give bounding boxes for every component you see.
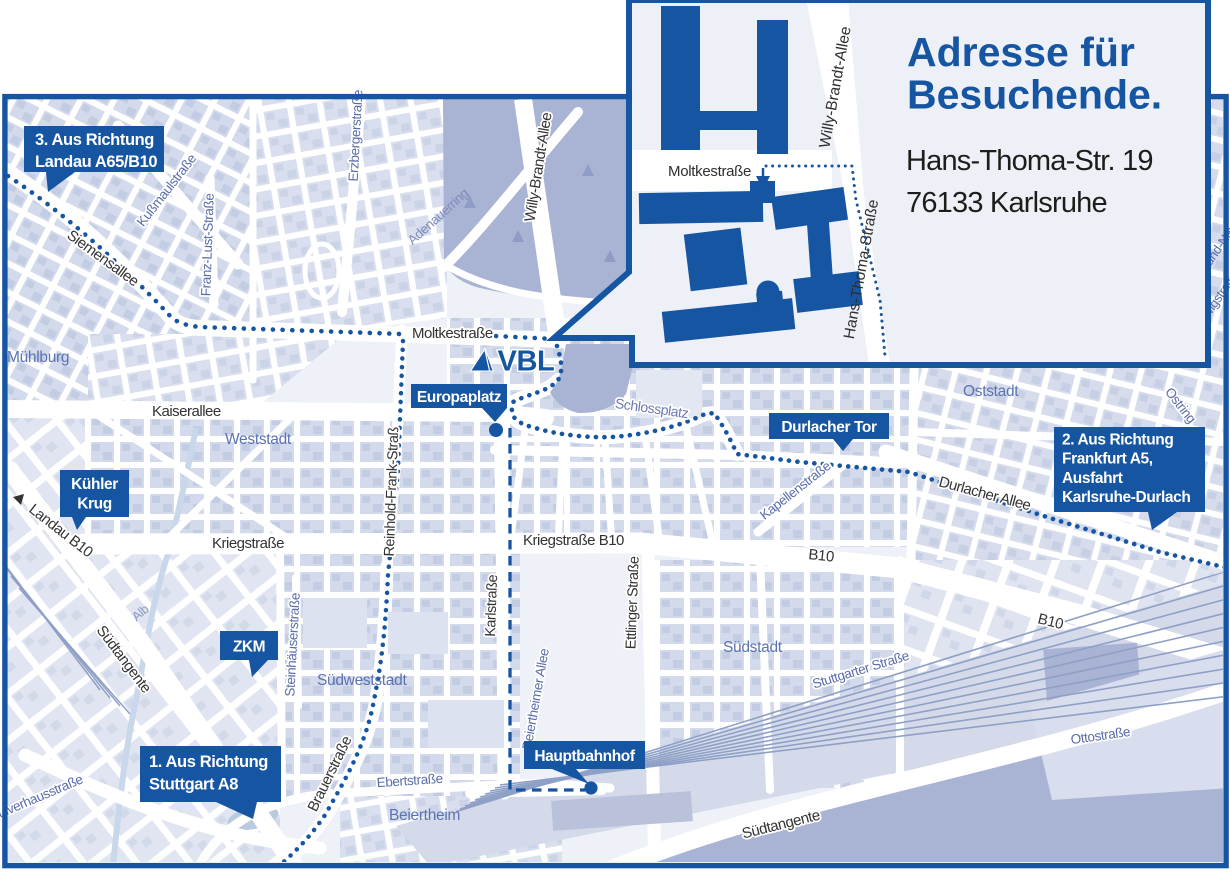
svg-text:2. Aus Richtung: 2. Aus Richtung bbox=[1062, 432, 1173, 449]
svg-text:B10: B10 bbox=[808, 546, 835, 566]
svg-text:ZKM: ZKM bbox=[233, 639, 265, 656]
svg-text:Frankfurt A5,: Frankfurt A5, bbox=[1062, 451, 1153, 468]
svg-text:Karlstraße: Karlstraße bbox=[483, 574, 501, 637]
svg-text:Moltkestraße: Moltkestraße bbox=[412, 325, 493, 342]
svg-text:Hauptbahnhof: Hauptbahnhof bbox=[534, 748, 635, 765]
svg-text:Südstadt: Südstadt bbox=[723, 639, 783, 656]
svg-text:Landau A65/B10: Landau A65/B10 bbox=[35, 153, 157, 171]
svg-text:Beiertheim: Beiertheim bbox=[389, 807, 460, 824]
svg-text:Durlacher Tor: Durlacher Tor bbox=[781, 419, 877, 436]
svg-text:VBL: VBL bbox=[498, 346, 555, 378]
svg-text:Oststadt: Oststadt bbox=[963, 383, 1019, 400]
svg-text:76133 Karlsruhe: 76133 Karlsruhe bbox=[906, 187, 1107, 219]
svg-text:Südweststadt: Südweststadt bbox=[317, 672, 407, 689]
svg-text:Europaplatz: Europaplatz bbox=[417, 389, 502, 406]
svg-text:1. Aus Richtung: 1. Aus Richtung bbox=[149, 753, 268, 771]
svg-text:Ettlinger Straße: Ettlinger Straße bbox=[623, 556, 642, 650]
svg-text:Krug: Krug bbox=[77, 496, 112, 513]
svg-text:Kaiserallee: Kaiserallee bbox=[152, 403, 221, 420]
svg-text:Adresse für: Adresse für bbox=[907, 29, 1135, 75]
svg-text:Kriegstraße B10: Kriegstraße B10 bbox=[523, 532, 624, 549]
svg-text:Stuttgart A8: Stuttgart A8 bbox=[149, 776, 238, 794]
svg-text:Moltkestraße: Moltkestraße bbox=[668, 163, 751, 180]
svg-text:Weststadt: Weststadt bbox=[225, 431, 292, 448]
svg-text:3. Aus Richtung: 3. Aus Richtung bbox=[35, 131, 154, 149]
svg-text:Hans-Thoma-Str. 19: Hans-Thoma-Str. 19 bbox=[906, 145, 1153, 177]
svg-text:Kühler: Kühler bbox=[71, 476, 118, 493]
svg-text:Ausfahrt: Ausfahrt bbox=[1062, 470, 1123, 487]
svg-text:Karlsruhe-Durlach: Karlsruhe-Durlach bbox=[1062, 489, 1190, 506]
svg-text:Besuchende.: Besuchende. bbox=[907, 72, 1162, 118]
svg-text:Mühlburg: Mühlburg bbox=[7, 349, 69, 366]
svg-text:Kriegstraße: Kriegstraße bbox=[212, 535, 284, 552]
